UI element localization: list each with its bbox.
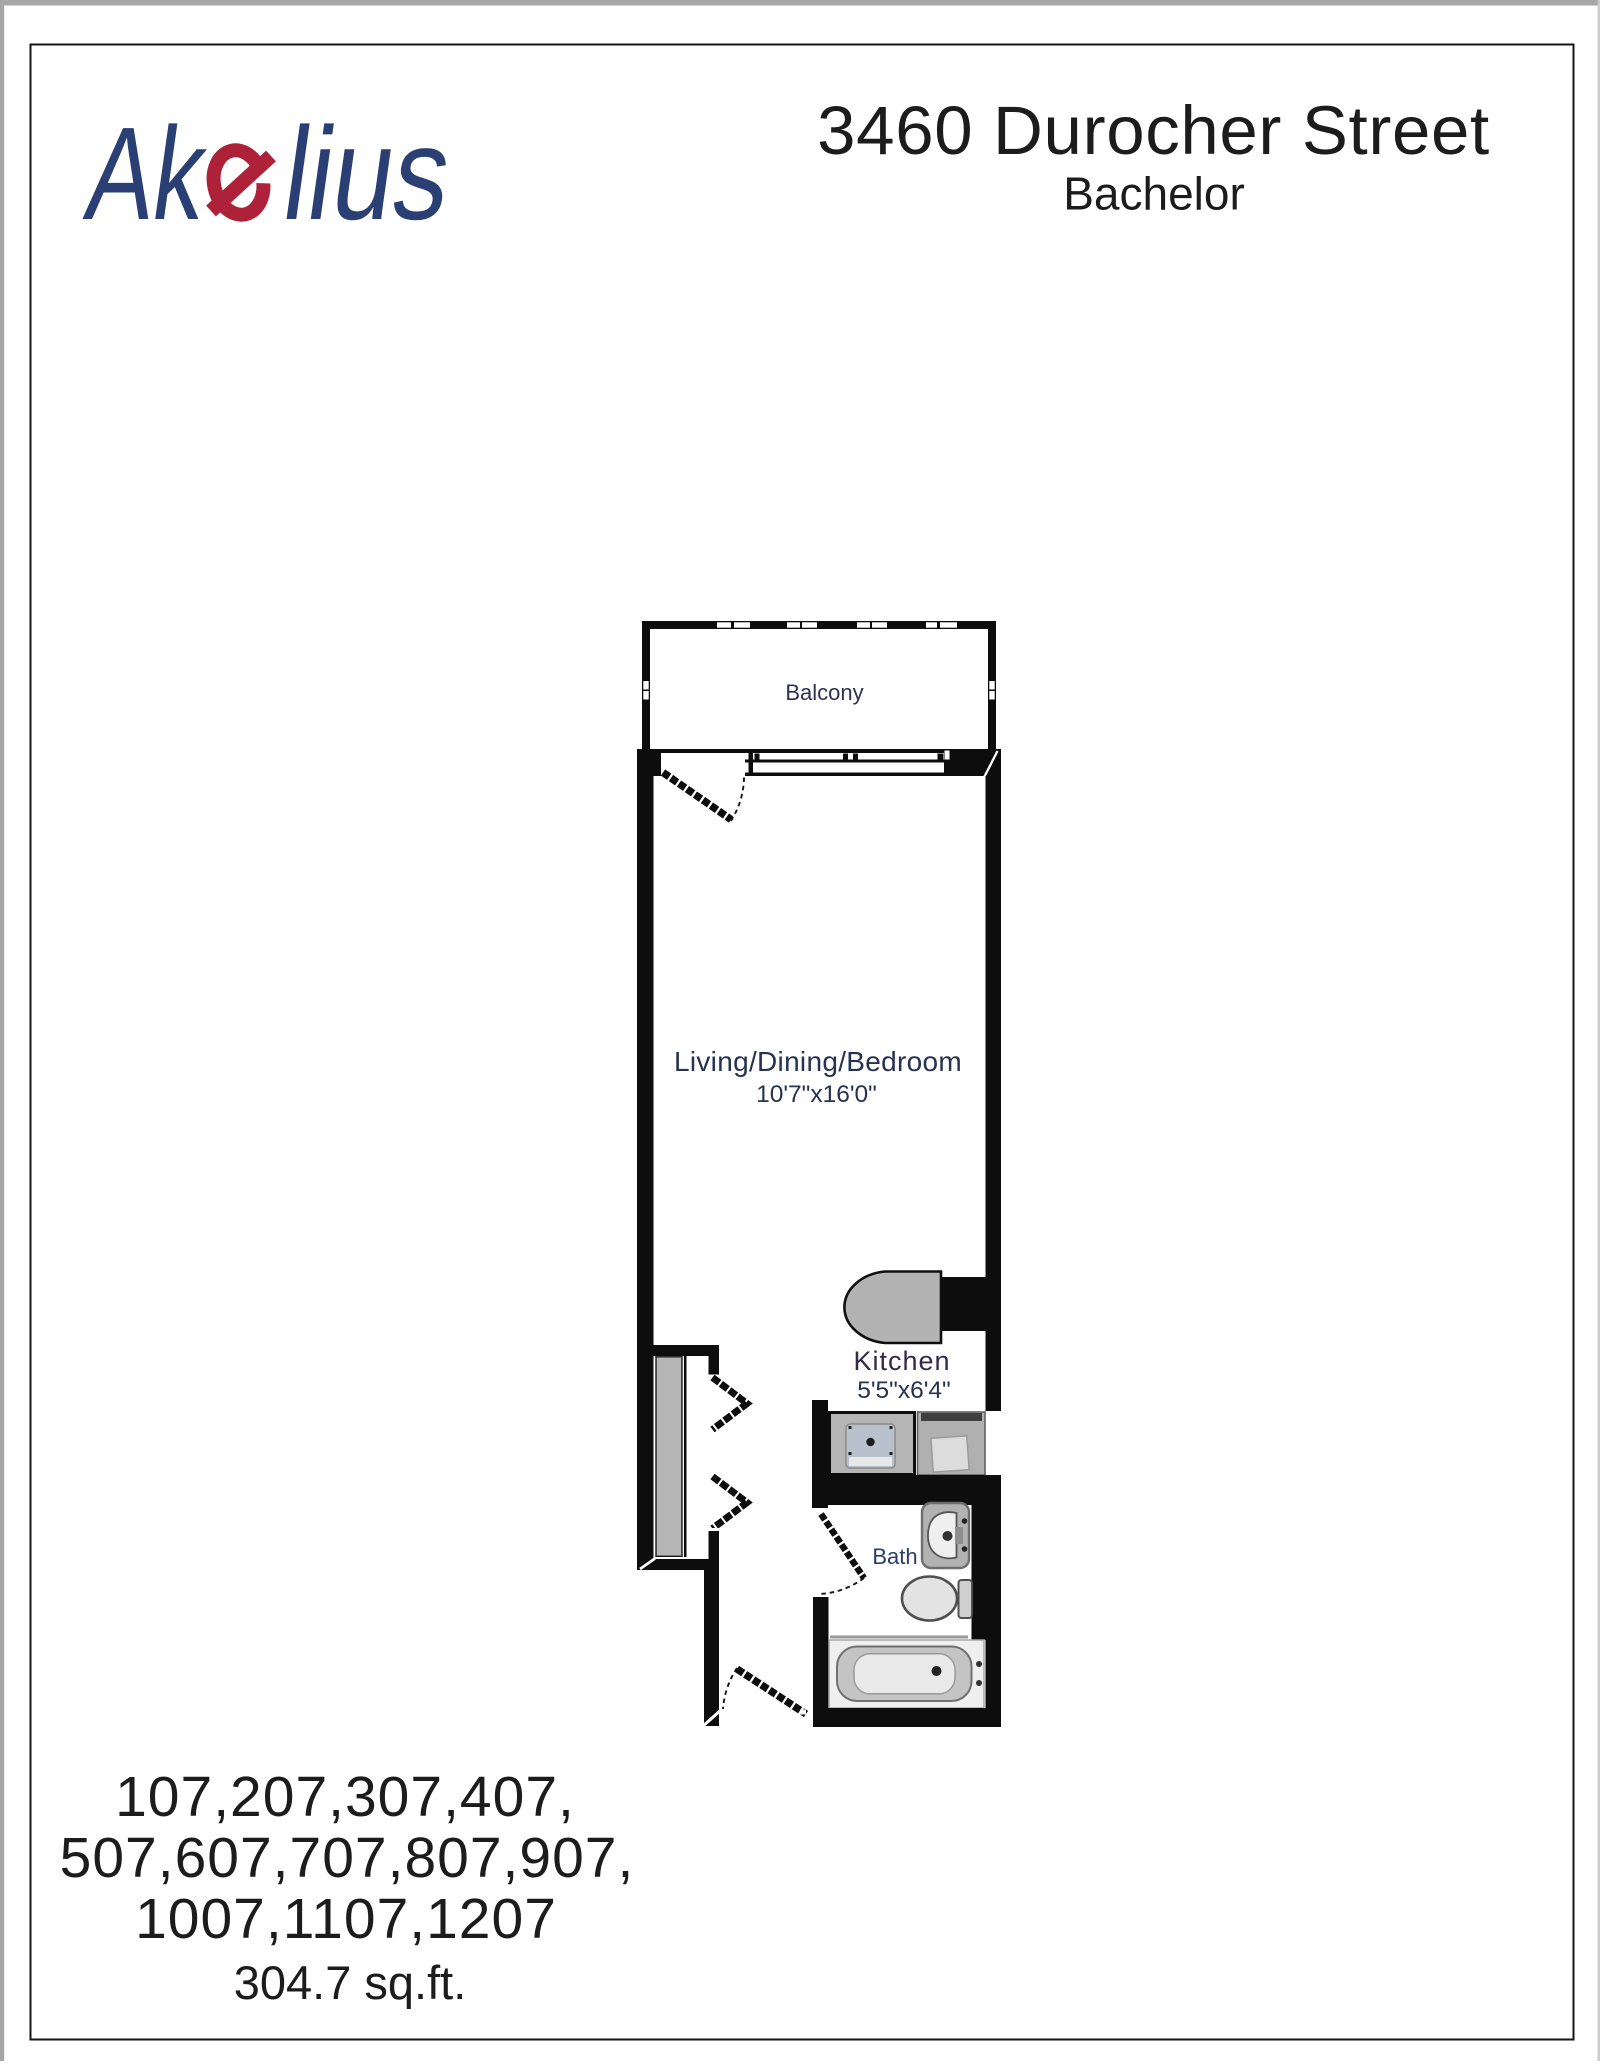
svg-text:5'5"x6'4": 5'5"x6'4" (857, 1377, 951, 1404)
svg-text:Living/Dining/Bedroom: Living/Dining/Bedroom (674, 1046, 962, 1077)
svg-text:lius: lius (275, 101, 460, 248)
svg-text:1007,1107,1207: 1007,1107,1207 (135, 1887, 557, 1951)
svg-text:3460 Durocher Street: 3460 Durocher Street (817, 92, 1490, 169)
svg-text:107,207,307,407,: 107,207,307,407, (115, 1765, 575, 1829)
svg-text:10'7"x16'0": 10'7"x16'0" (756, 1081, 877, 1108)
svg-text:Ak: Ak (78, 101, 215, 248)
svg-text:Kitchen: Kitchen (853, 1346, 950, 1376)
svg-text:507,607,707,807,907,: 507,607,707,807,907, (60, 1826, 635, 1890)
svg-text:Balcony: Balcony (785, 680, 863, 705)
svg-text:Bachelor: Bachelor (1063, 168, 1245, 220)
svg-text:304.7 sq.ft.: 304.7 sq.ft. (234, 1956, 467, 2009)
svg-text:Bath: Bath (872, 1544, 917, 1569)
